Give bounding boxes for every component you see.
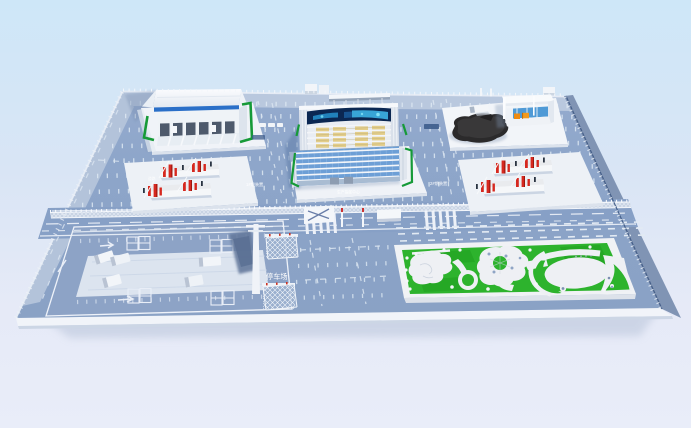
svg-text:道路: 道路	[148, 176, 156, 181]
svg-text:1#期装置: 1#期装置	[246, 181, 263, 188]
svg-text:停车场: 停车场	[266, 272, 288, 281]
svg-text:2#期装置: 2#期装置	[430, 180, 447, 187]
svg-text:生产指挥中心: 生产指挥中心	[337, 190, 360, 195]
